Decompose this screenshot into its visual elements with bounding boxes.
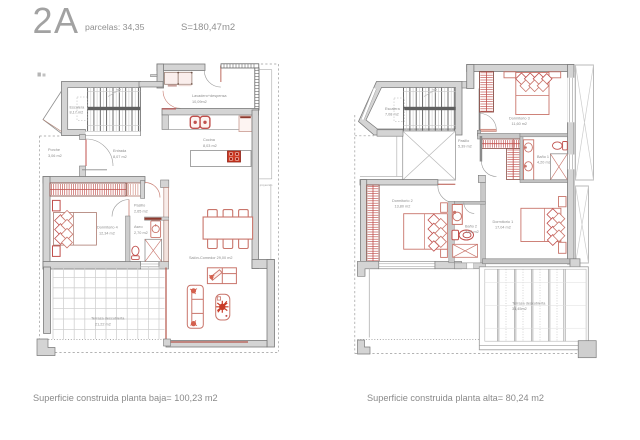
svg-text:12,34 m2: 12,34 m2: [99, 232, 115, 236]
svg-text:13,80 m2: 13,80 m2: [395, 205, 411, 209]
svg-text:Dormitorio 1: Dormitorio 1: [493, 220, 514, 224]
svg-text:2A: 2A: [33, 0, 80, 41]
svg-text:Baño 2: Baño 2: [465, 225, 477, 229]
svg-text:2,65 m2: 2,65 m2: [134, 210, 148, 214]
svg-text:Escalera: Escalera: [70, 106, 86, 110]
svg-text:Aseo: Aseo: [134, 225, 143, 229]
svg-text:Baño 1: Baño 1: [537, 155, 549, 159]
svg-text:11,60 m2: 11,60 m2: [512, 122, 528, 126]
svg-text:Dormitorio 3: Dormitorio 3: [509, 117, 530, 121]
svg-text:Lavadero+despensa: Lavadero+despensa: [192, 94, 227, 98]
svg-text:Pasillo: Pasillo: [458, 139, 469, 143]
svg-text:3,84 m2: 3,84 m2: [465, 230, 479, 234]
svg-text:Dormitorio 2: Dormitorio 2: [392, 199, 413, 203]
svg-text:Terraza descubierta: Terraza descubierta: [512, 302, 546, 306]
svg-text:Salón-Comedor 29,00 m2: Salón-Comedor 29,00 m2: [189, 256, 232, 260]
svg-text:Superficie construida planta a: Superficie construida planta alta= 80,24…: [367, 393, 544, 403]
svg-text:10,09m2: 10,09m2: [192, 100, 207, 104]
svg-text:Escalera: Escalera: [385, 107, 401, 111]
svg-text:8,17 m2: 8,17 m2: [70, 111, 84, 115]
svg-text:Cocina: Cocina: [203, 138, 216, 142]
svg-text:S=180,47m2: S=180,47m2: [181, 22, 235, 33]
svg-text:Dormitorio 4: Dormitorio 4: [97, 226, 118, 230]
svg-text:17,04 m2: 17,04 m2: [495, 226, 511, 230]
svg-text:8,03 m2: 8,03 m2: [203, 144, 217, 148]
svg-text:proyección: proyección: [260, 183, 273, 187]
svg-text:4,20 m2: 4,20 m2: [537, 161, 551, 165]
svg-text:Entrada: Entrada: [113, 149, 127, 153]
svg-text:Terraza descubierta: Terraza descubierta: [91, 317, 125, 321]
svg-text:Pasillo: Pasillo: [134, 204, 145, 208]
svg-text:8,07 m2: 8,07 m2: [113, 155, 127, 159]
svg-text:5,39 m2: 5,39 m2: [458, 145, 472, 149]
svg-text:parcelas: 34,35: parcelas: 34,35: [85, 22, 145, 32]
svg-text:31,45m2: 31,45m2: [512, 307, 527, 311]
svg-text:Superficie construida planta b: Superficie construida planta baja= 100,2…: [33, 393, 218, 403]
svg-text:2,70 m2: 2,70 m2: [134, 231, 148, 235]
svg-text:Porche: Porche: [48, 148, 60, 152]
svg-text:3,06 m2: 3,06 m2: [48, 154, 62, 158]
svg-text:7,08 m2: 7,08 m2: [385, 113, 399, 117]
svg-text:21,22 m2: 21,22 m2: [95, 323, 111, 327]
